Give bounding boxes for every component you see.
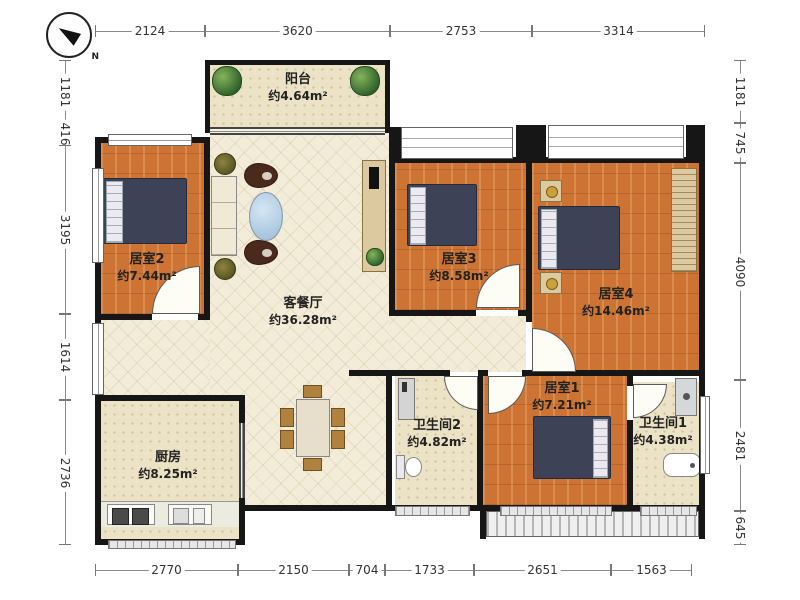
toilet-bowl [405, 457, 422, 477]
bedroom4-bed [538, 206, 620, 270]
wall [242, 505, 392, 511]
dim-bottom-1: 2150 [238, 564, 349, 576]
bath1-label: 卫生间1 约4.38m² [633, 416, 692, 448]
dim-right-4: 645 [734, 511, 746, 545]
bedroom1-bottom-window [500, 506, 612, 516]
bath1-right-window [700, 396, 710, 474]
dining-chair [303, 458, 322, 471]
nightstand [540, 272, 562, 294]
compass-needle-icon [55, 22, 81, 46]
dim-right-2: 4090 [734, 163, 746, 380]
dining-table [296, 399, 330, 457]
dining-chair [331, 408, 345, 427]
bedroom3-label: 居室3 约8.58m² [429, 252, 488, 284]
balcony-label: 阳台 约4.64m² [268, 72, 327, 104]
bedroom3-bed [407, 184, 477, 246]
faucet-icon [193, 508, 205, 524]
wall [239, 395, 245, 423]
dim-left-0: 1181 [59, 60, 71, 123]
dim-left-4: 2736 [59, 400, 71, 545]
dining-chair [331, 430, 345, 449]
lamp-icon [546, 186, 558, 198]
wall [480, 511, 486, 539]
dim-left-2: 3195 [59, 145, 71, 314]
toilet-tank [396, 455, 405, 479]
hall-bay-floor [101, 320, 210, 401]
bedroom1-label: 居室1 约7.21m² [532, 381, 591, 413]
wall [389, 157, 395, 316]
wall [349, 370, 450, 376]
dim-top-0: 2124 [95, 25, 205, 37]
wall [386, 376, 392, 511]
wardrobe [671, 168, 697, 272]
wall [205, 60, 210, 133]
wall [686, 125, 705, 159]
dim-bottom-5: 1563 [611, 564, 692, 576]
kitchen-label: 厨房 约8.25m² [138, 450, 197, 482]
side-table-plant-icon [214, 258, 236, 280]
drain-icon [690, 463, 695, 468]
dim-bottom-0: 2770 [95, 564, 238, 576]
wall [389, 127, 401, 159]
bedroom2-bed [103, 178, 187, 244]
wall [627, 420, 633, 511]
shower-stall [398, 378, 415, 420]
lamp-icon [546, 278, 558, 290]
balcony-sliding-door [210, 127, 385, 135]
shower-head-icon [402, 382, 407, 392]
wall [385, 60, 390, 133]
dining-chair [280, 430, 294, 449]
dim-top-3: 3314 [532, 25, 705, 37]
cabinet-plant-icon [366, 248, 384, 266]
bedroom4-label: 居室4 约14.46m² [582, 287, 650, 319]
wall [526, 157, 532, 322]
burner-icon [112, 508, 129, 525]
basin-icon [683, 393, 690, 400]
bathtub [663, 453, 701, 477]
dim-right-3: 2481 [734, 380, 746, 511]
kitchen-bottom-window [108, 540, 236, 549]
bedroom1-bed [533, 416, 611, 479]
wall [389, 310, 476, 316]
balcony-plant-icon [212, 66, 242, 96]
hallway-floor [389, 316, 526, 372]
sofa [211, 176, 237, 256]
dim-right-1: 745 [734, 123, 746, 163]
burner-icon [132, 508, 149, 525]
bed-pillows [410, 187, 426, 245]
bedroom3-top-window [401, 127, 513, 159]
dim-bottom-2: 704 [349, 564, 385, 576]
dining-chair [303, 385, 322, 398]
tv-icon [369, 167, 379, 189]
armchair-cushion [262, 172, 272, 180]
wall [198, 314, 210, 320]
nightstand [540, 180, 562, 202]
bath1-bottom-window [640, 506, 697, 516]
bed-pillows [541, 209, 557, 269]
wall [95, 395, 245, 401]
coffee-table [249, 192, 283, 241]
dim-bottom-4: 2651 [474, 564, 611, 576]
kitchen-stove [107, 504, 155, 525]
wall [699, 511, 705, 539]
dim-top-1: 3620 [205, 25, 390, 37]
dim-top-2: 2753 [390, 25, 532, 37]
living-label: 客餐厅 约36.28m² [269, 296, 337, 328]
wall [518, 310, 532, 316]
dining-chair [280, 408, 294, 427]
dim-bottom-3: 1733 [385, 564, 474, 576]
dim-left-3: 1614 [59, 314, 71, 400]
floor-plan: N [0, 0, 800, 600]
bath2-bottom-window [395, 506, 470, 516]
bedroom2-top-window [108, 134, 192, 146]
balcony-plant-icon [350, 66, 380, 96]
bedroom2-left-window [92, 168, 104, 263]
sink-basin-icon [173, 508, 189, 524]
wall [516, 125, 546, 159]
side-table-plant-icon [214, 153, 236, 175]
tv-cabinet [362, 160, 386, 272]
armchair-cushion [262, 249, 272, 257]
bedroom4-top-window [548, 125, 684, 159]
north-compass-icon: N [46, 12, 92, 58]
compass-north-label: N [91, 52, 99, 62]
bathroom-vanity [675, 378, 697, 416]
wall [95, 314, 152, 320]
bed-pillows [593, 419, 608, 478]
bedroom2-label: 居室2 约7.44m² [117, 252, 176, 284]
kitchen-sink [168, 504, 212, 525]
wall [204, 137, 210, 320]
bath2-label: 卫生间2 约4.82m² [407, 418, 466, 450]
hall-bay-window [92, 323, 104, 395]
wall [205, 60, 390, 65]
dim-right-0: 1181 [734, 60, 746, 123]
dim-left-1: 416 [59, 123, 71, 145]
kitchen-sliding-door [239, 423, 245, 498]
bed-pillows [106, 181, 123, 243]
